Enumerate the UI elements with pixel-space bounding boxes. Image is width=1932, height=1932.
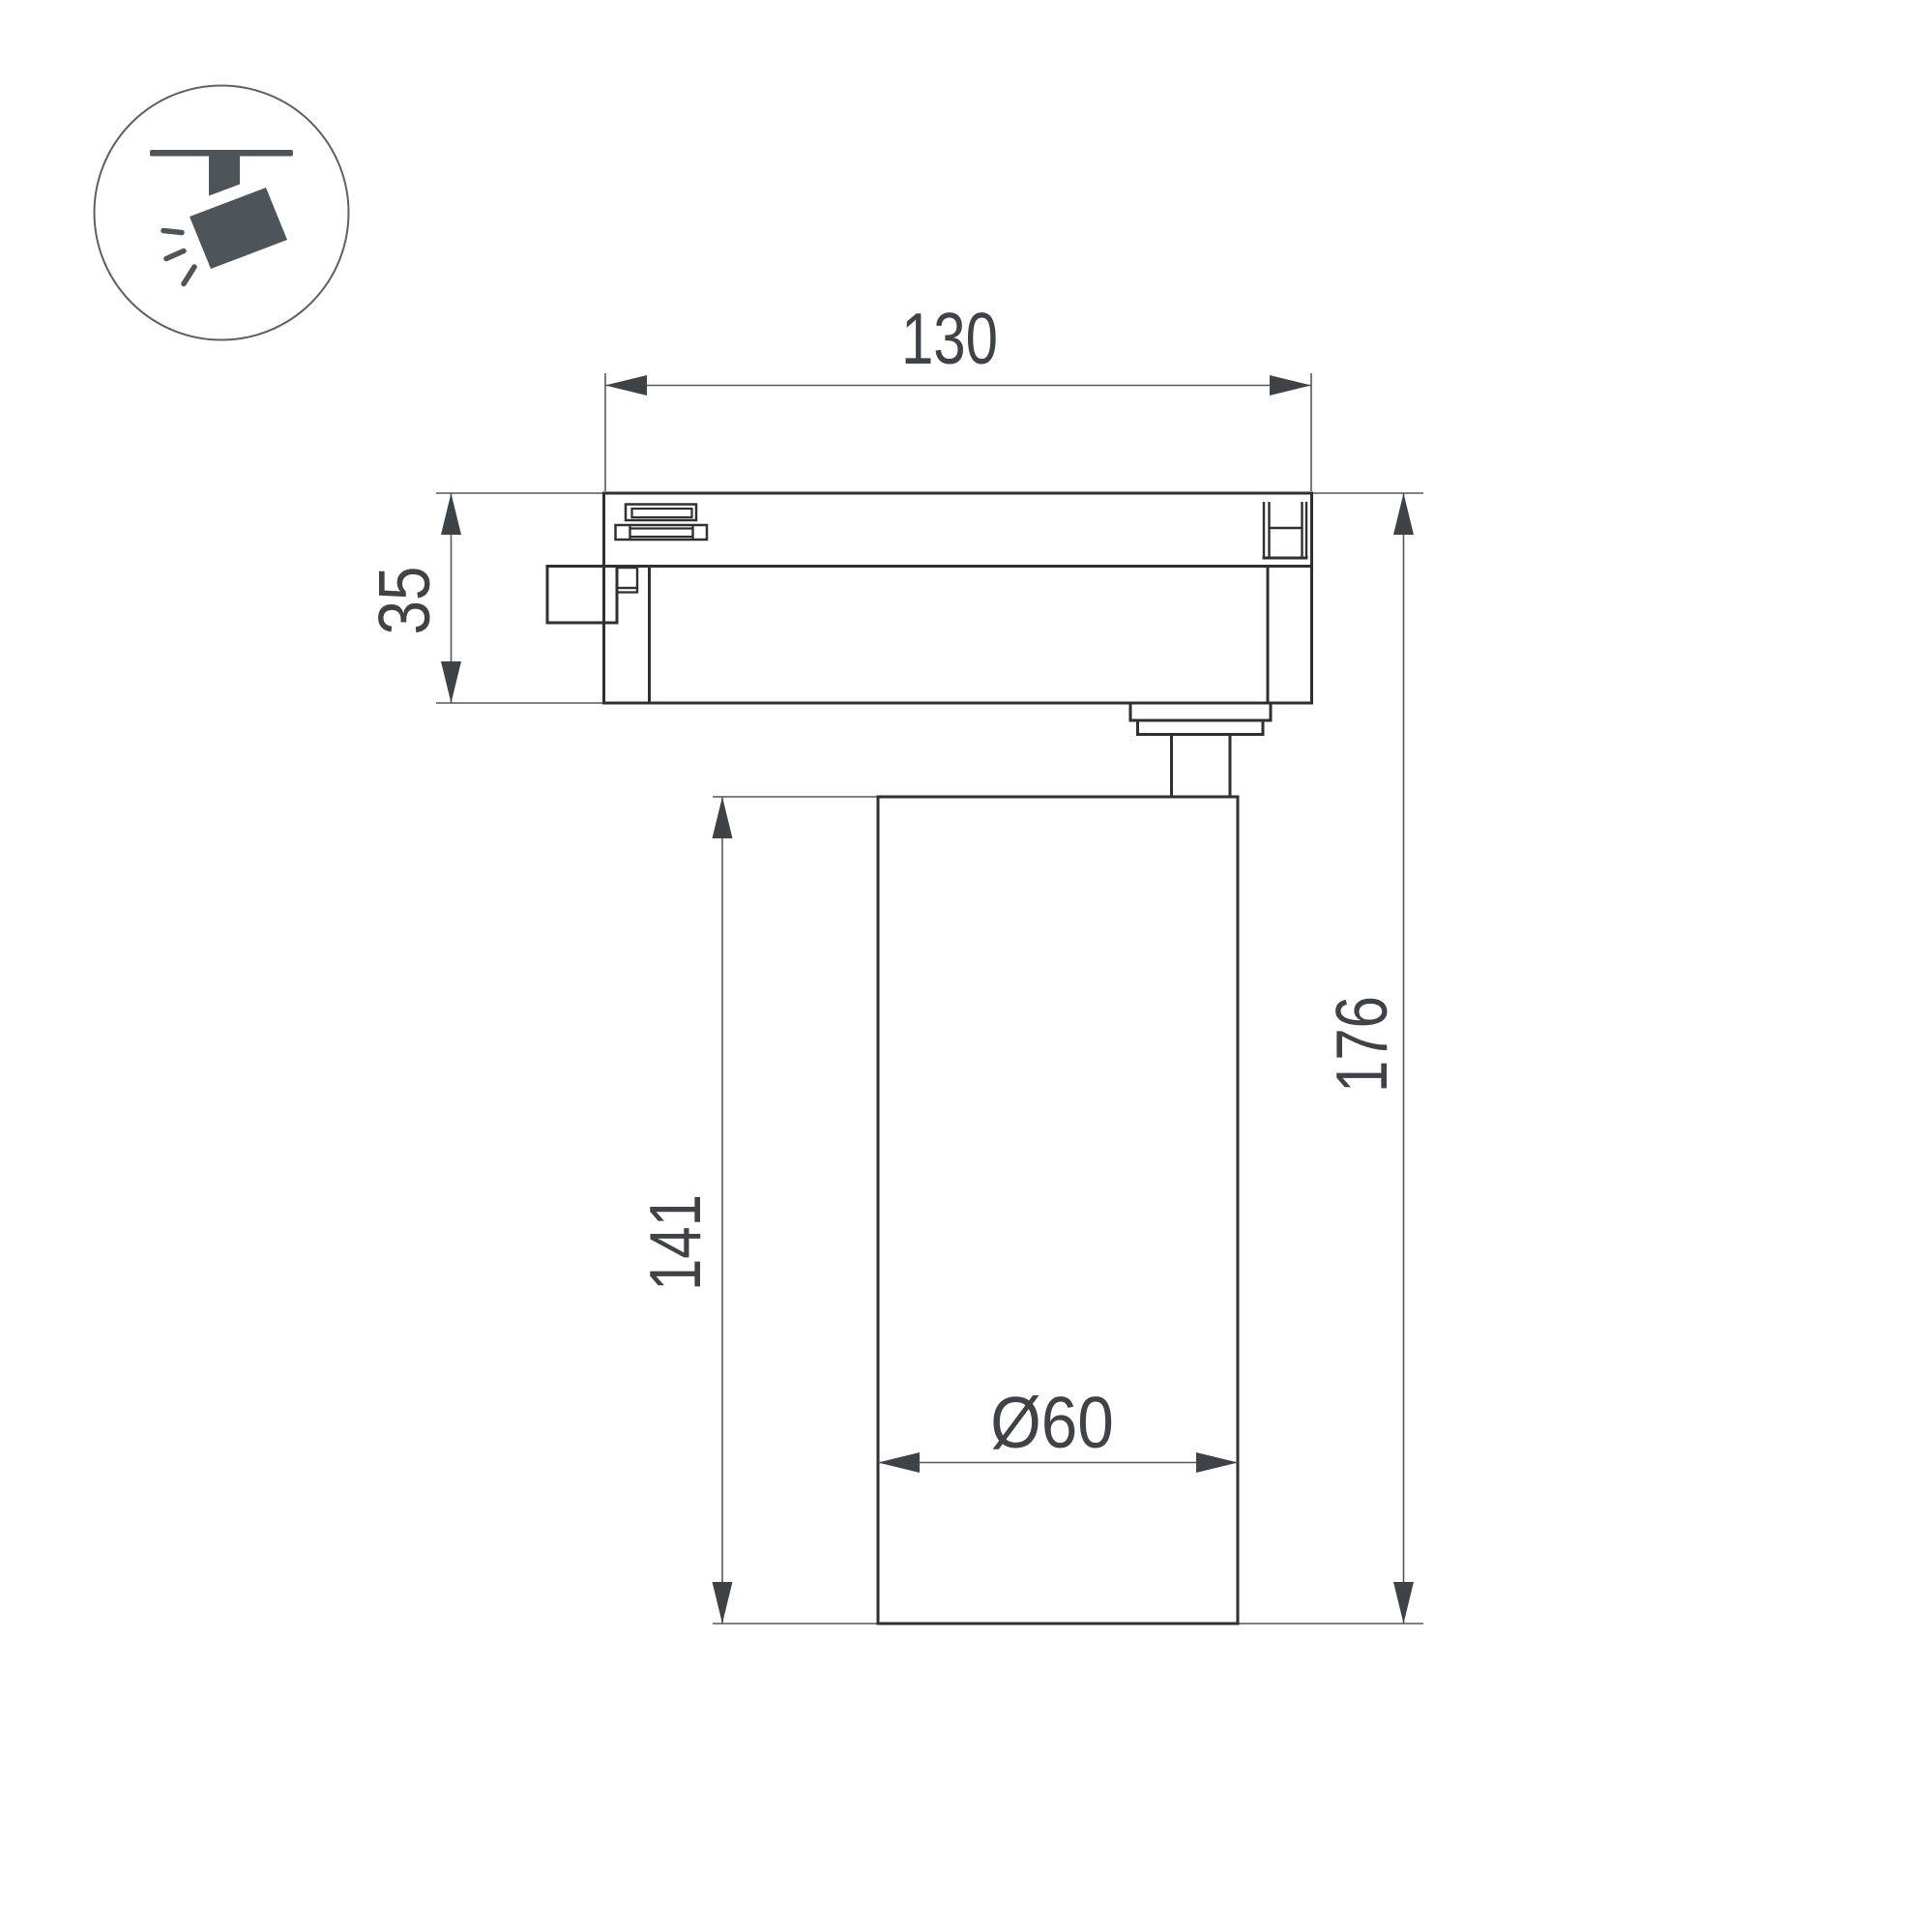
svg-text:141: 141 <box>636 1194 717 1291</box>
svg-text:Ø60: Ø60 <box>990 1383 1114 1464</box>
svg-text:176: 176 <box>1323 996 1403 1093</box>
svg-text:35: 35 <box>364 567 445 635</box>
svg-text:130: 130 <box>901 300 998 380</box>
